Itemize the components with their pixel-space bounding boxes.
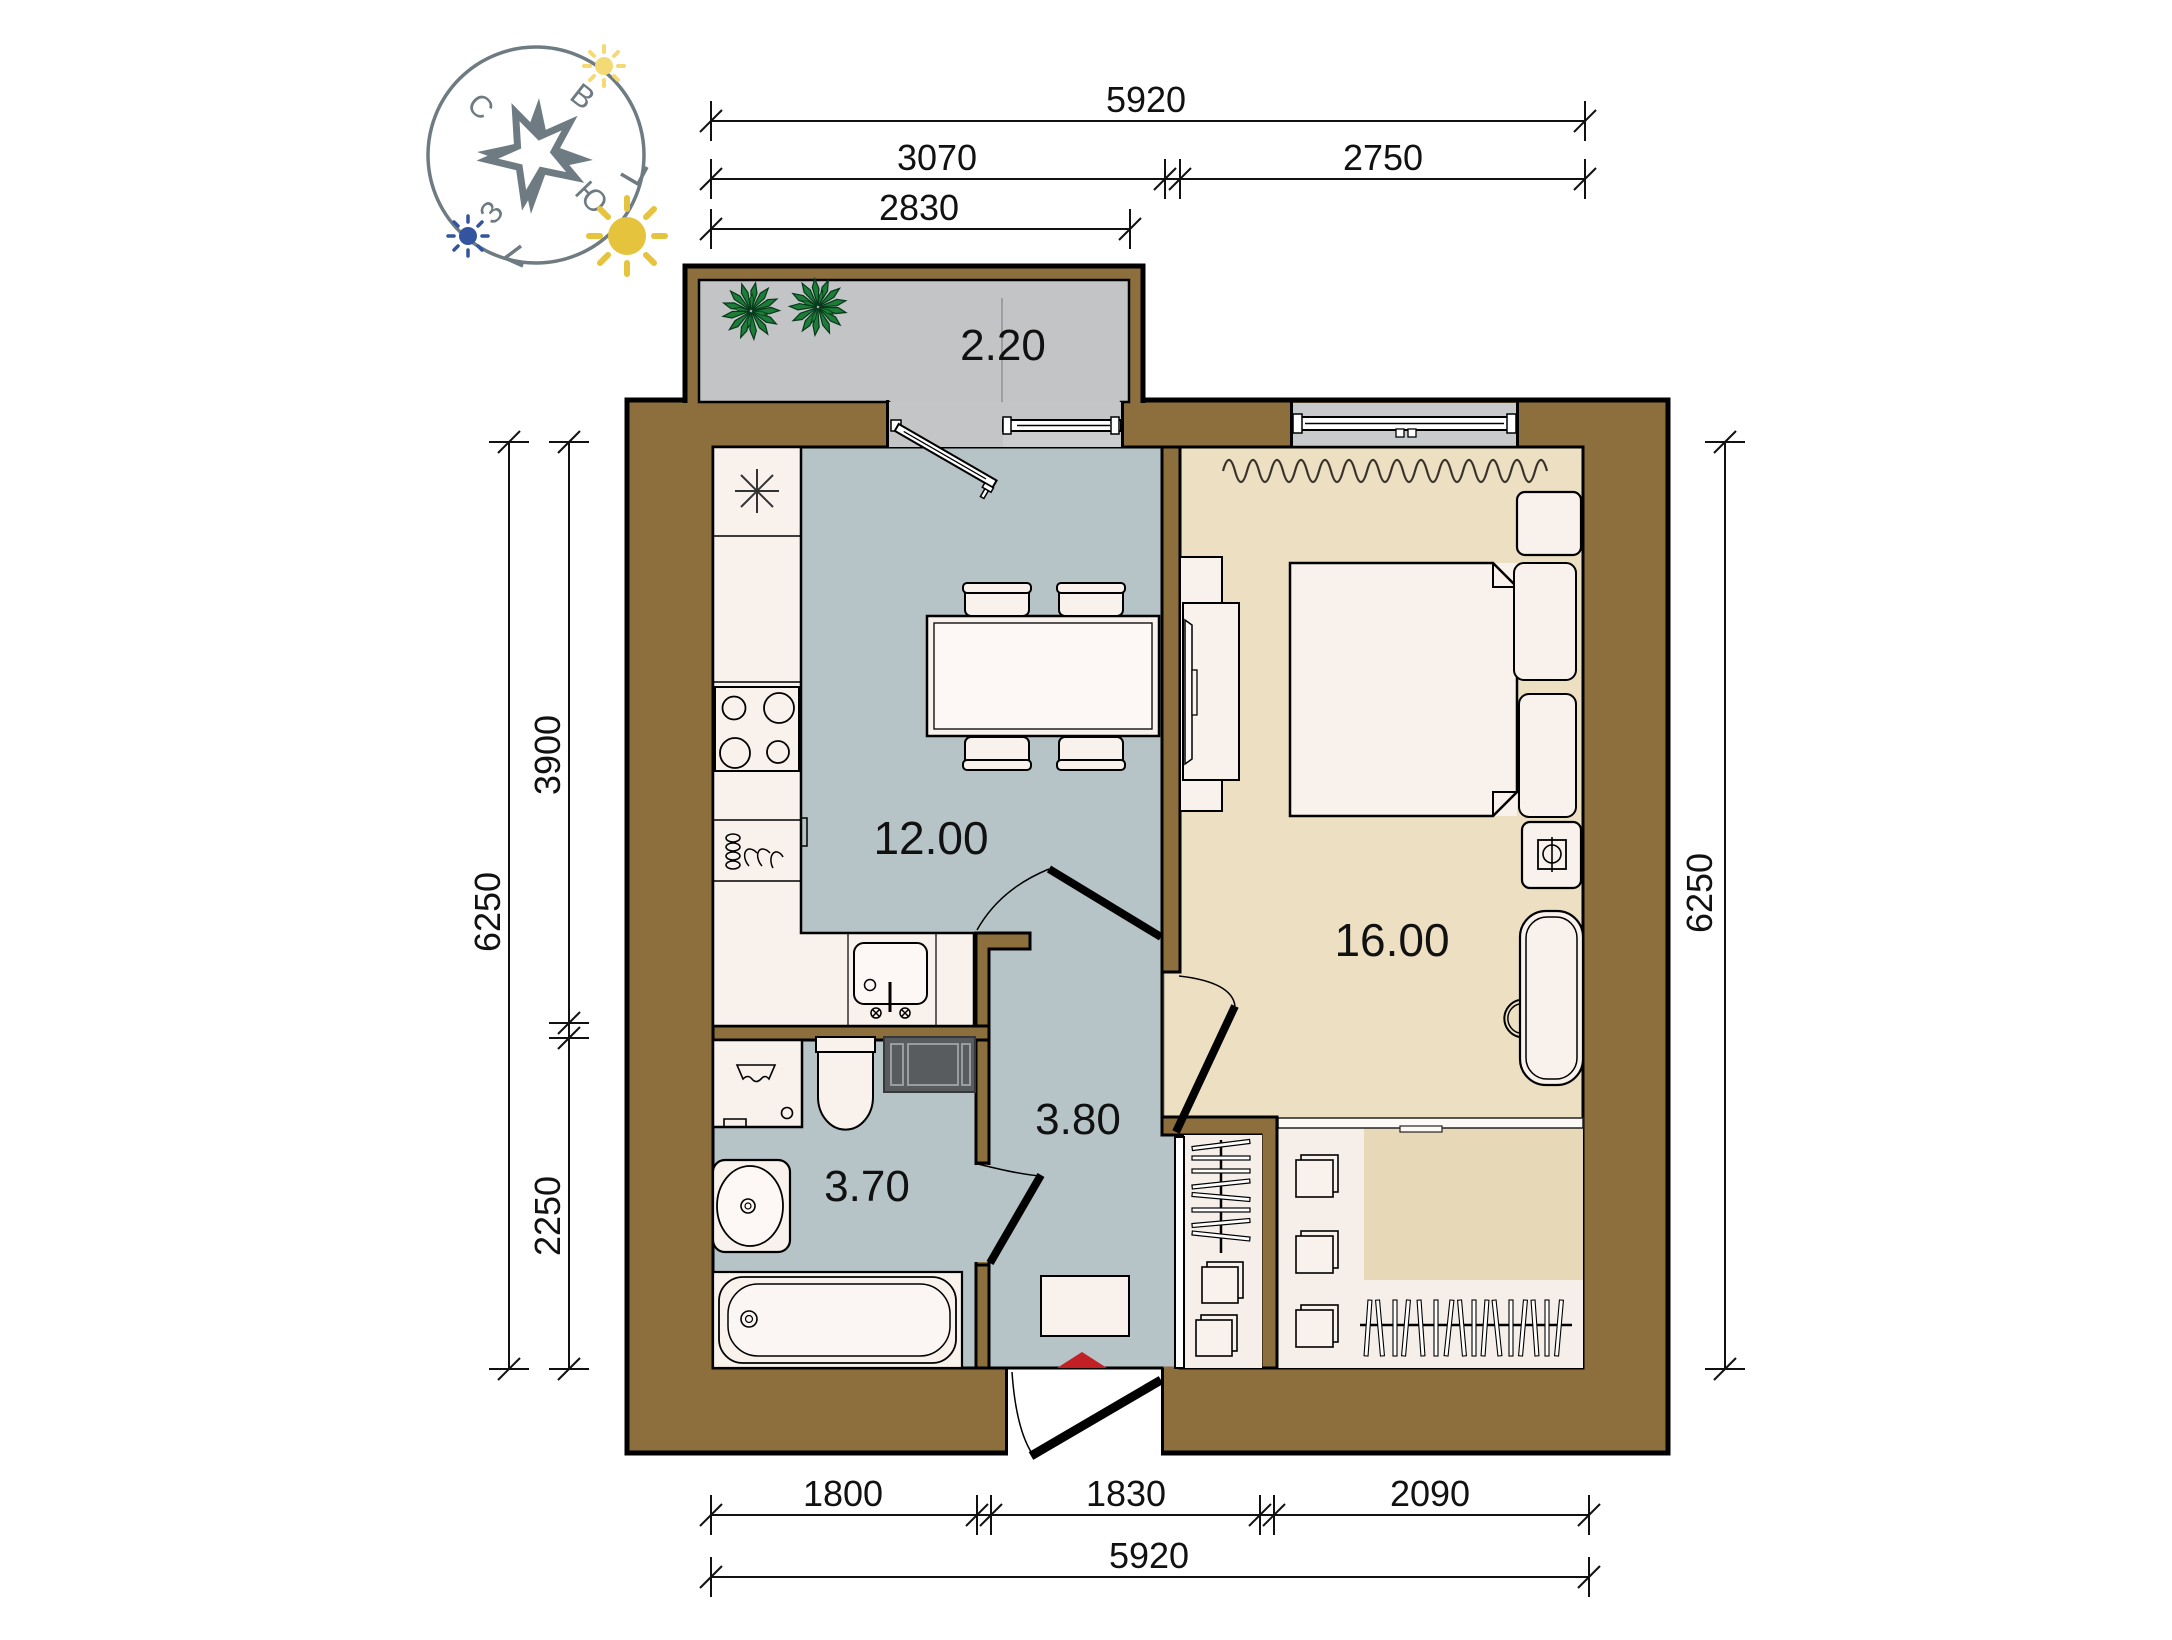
svg-text:2830: 2830 [879,187,959,228]
svg-text:2090: 2090 [1390,1473,1470,1514]
svg-text:С: С [460,86,500,127]
svg-text:3.80: 3.80 [1035,1095,1121,1144]
svg-text:3070: 3070 [897,137,977,178]
svg-text:5920: 5920 [1106,79,1186,120]
svg-text:6250: 6250 [467,872,508,952]
svg-text:1800: 1800 [803,1473,883,1514]
svg-text:1830: 1830 [1086,1473,1166,1514]
svg-text:2750: 2750 [1343,137,1423,178]
svg-text:3900: 3900 [527,715,568,795]
svg-text:5920: 5920 [1109,1535,1189,1576]
svg-text:2.20: 2.20 [960,321,1046,370]
svg-text:В: В [564,76,602,116]
svg-text:2250: 2250 [527,1176,568,1256]
svg-text:12.00: 12.00 [873,812,988,864]
svg-text:3.70: 3.70 [824,1162,910,1211]
svg-text:6250: 6250 [1679,853,1720,933]
svg-text:16.00: 16.00 [1334,914,1449,966]
